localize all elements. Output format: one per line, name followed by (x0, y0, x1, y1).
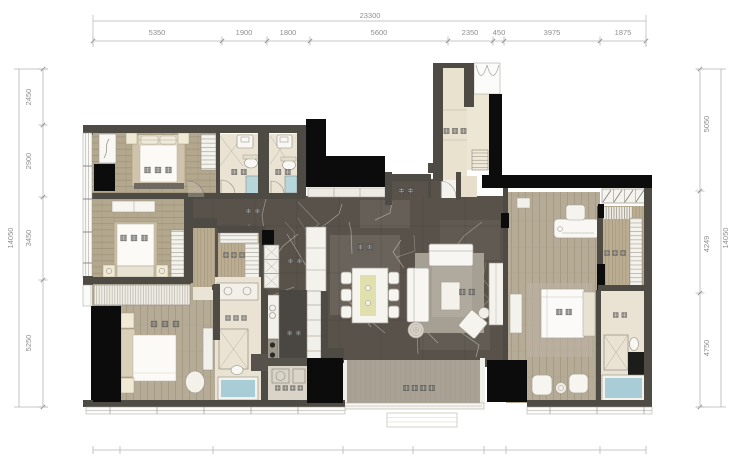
svg-text:450: 450 (493, 28, 506, 37)
svg-text:5350: 5350 (149, 28, 166, 37)
svg-text:23300: 23300 (360, 11, 381, 20)
svg-text:3975: 3975 (544, 28, 561, 37)
svg-text:1900: 1900 (236, 28, 253, 37)
svg-text:1800: 1800 (280, 28, 297, 37)
svg-text:14050: 14050 (6, 228, 15, 249)
svg-text:14050: 14050 (721, 228, 730, 249)
svg-text:2350: 2350 (462, 28, 479, 37)
svg-text:1875: 1875 (615, 28, 632, 37)
svg-text:2450: 2450 (24, 89, 33, 106)
svg-text:5600: 5600 (371, 28, 388, 37)
svg-text:5250: 5250 (24, 335, 33, 352)
svg-text:5050: 5050 (702, 116, 711, 133)
svg-text:4750: 4750 (702, 340, 711, 357)
svg-text:3450: 3450 (24, 230, 33, 247)
svg-text:2900: 2900 (24, 153, 33, 170)
svg-text:4249: 4249 (702, 236, 711, 253)
